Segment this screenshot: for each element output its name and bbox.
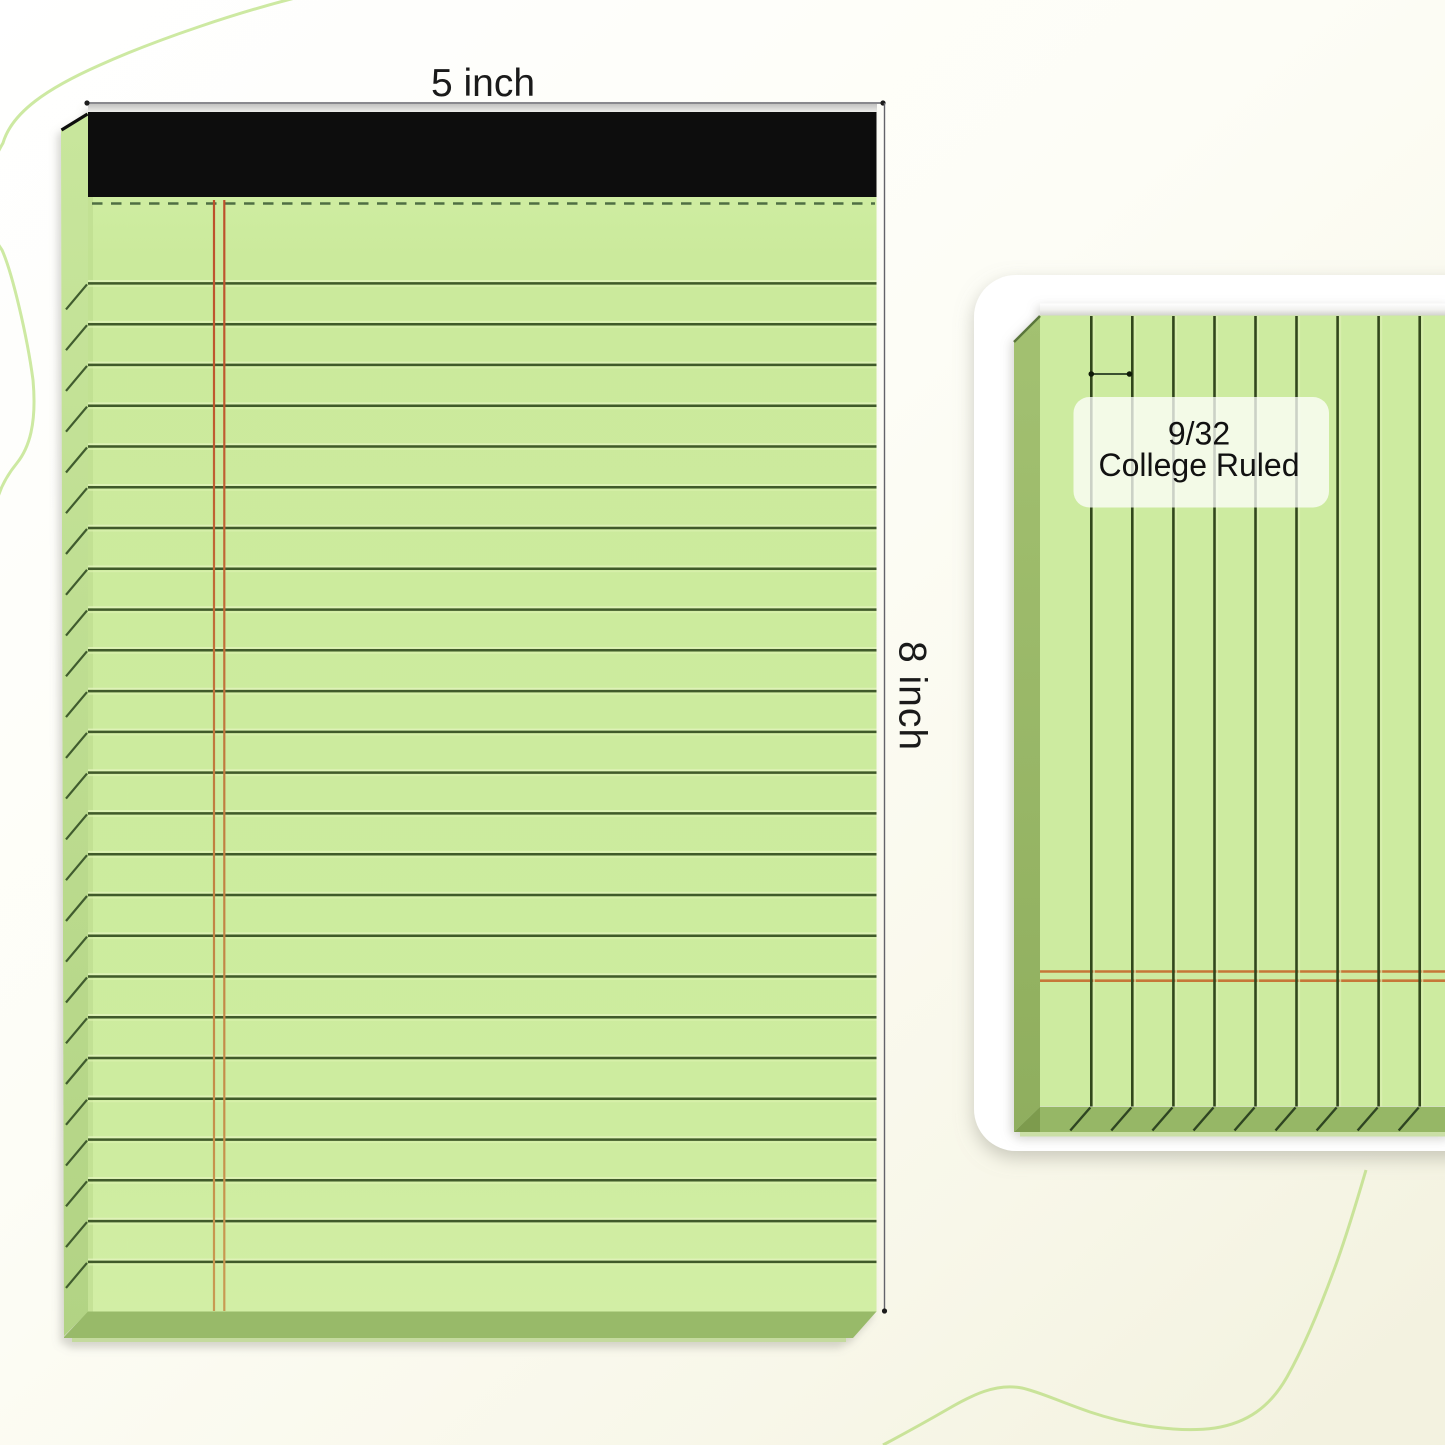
- svg-text:College Ruled: College Ruled: [1098, 447, 1299, 483]
- svg-text:8 inch: 8 inch: [891, 641, 934, 751]
- svg-text:5 inch: 5 inch: [431, 62, 535, 105]
